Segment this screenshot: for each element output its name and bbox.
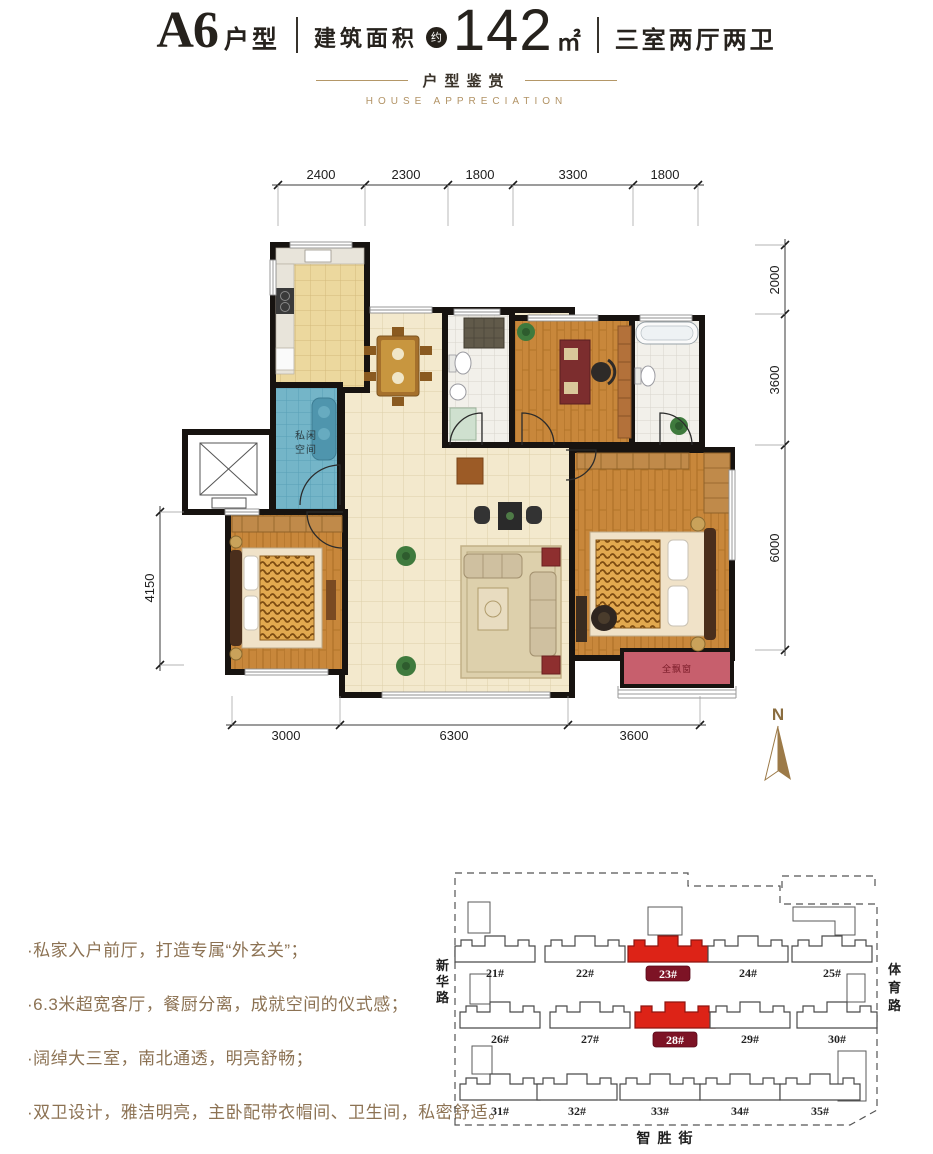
building-row-1: 21# 22# 23# 24# 25# (455, 936, 872, 981)
dim-bottom-3: 3600 (620, 728, 649, 743)
dim-top-4: 3300 (559, 167, 588, 182)
unit-code: A6 (156, 5, 218, 57)
building-26-label: 26# (491, 1032, 509, 1046)
subtitle-cn: 户型鉴赏 (422, 70, 510, 91)
feature-item-1: ·私家入户前厅，打造专属“外玄关”； (27, 936, 465, 961)
building-23-label: 23# (659, 967, 677, 981)
building-26 (460, 1002, 540, 1028)
building-29-label: 29# (741, 1032, 759, 1046)
section-subtitle: 户型鉴赏 HOUSE APPRECIATION (0, 70, 933, 107)
area-unit: ㎡ (557, 6, 581, 57)
feature-list: ·私家入户前厅，打造专属“外玄关”； ·6.3米超宽客厅，餐厨分离，成就空间的仪… (27, 936, 465, 1152)
building-28-label: 28# (666, 1033, 684, 1047)
building-23-highlighted (628, 936, 708, 962)
second-bedroom-window (245, 669, 328, 675)
dim-left-1: 4150 (142, 574, 157, 603)
dim-bottom-2: 6300 (440, 728, 469, 743)
kitchen-top-window (290, 242, 352, 248)
north-arrow-right-half (778, 726, 791, 780)
building-33-label: 33# (651, 1104, 669, 1118)
building-32-label: 32# (568, 1104, 586, 1118)
building-22 (545, 936, 625, 962)
building-33 (620, 1074, 700, 1100)
building-31-label: 31# (491, 1104, 509, 1118)
road-right-label: 体育路 (888, 962, 902, 1013)
guest-bath-window (454, 309, 500, 315)
feature-item-3: ·阔绰大三室，南北通透，明亮舒畅； (27, 1044, 465, 1069)
unit-type-suffix: 户型 (224, 6, 280, 56)
dim-top-5: 1800 (651, 167, 680, 182)
building-35 (780, 1074, 860, 1100)
north-label: N (772, 705, 784, 724)
master-bedroom-window (729, 470, 735, 560)
entry-mat (457, 458, 483, 484)
subtitle-en: HOUSE APPRECIATION (0, 96, 933, 107)
subtitle-rule-right (525, 80, 617, 81)
living-room-window (382, 692, 550, 698)
floor-plan: 私闲空间 (130, 160, 830, 792)
study-window (528, 315, 598, 321)
building-21-label: 21# (486, 966, 504, 980)
area-value: 142 (453, 2, 553, 60)
building-29 (710, 1002, 790, 1028)
bay-window-label: 全飘窗 (662, 663, 692, 674)
dimension-left: 4150 (142, 506, 184, 671)
elevator-door-opening (225, 509, 259, 515)
master-bath-window (640, 315, 692, 321)
approx-badge: 约 (426, 27, 447, 48)
building-34-label: 34# (731, 1104, 749, 1118)
building-31 (460, 1074, 540, 1100)
building-24-label: 24# (739, 966, 757, 980)
dimension-top: 2400 2300 1800 3300 1800 (272, 167, 704, 226)
dim-right-2: 3600 (767, 366, 782, 395)
north-arrow: N (765, 705, 791, 780)
building-34 (700, 1074, 780, 1100)
road-bottom-label: 智胜街 (636, 1130, 700, 1147)
area-label: 建筑面积 (314, 9, 418, 53)
feature-item-2: ·6.3米超宽客厅，餐厨分离，成就空间的仪式感； (27, 990, 465, 1015)
building-21 (455, 936, 535, 962)
building-28-highlighted (635, 1002, 715, 1028)
building-25 (792, 936, 872, 962)
dim-top-1: 2400 (307, 167, 336, 182)
building-24 (708, 936, 788, 962)
kitchen-left-window (270, 260, 276, 295)
building-27-label: 27# (581, 1032, 599, 1046)
building-27 (550, 1002, 630, 1028)
page-header: A6 户型 建筑面积 约 142 ㎡ 三室两厅两卫 (0, 2, 933, 60)
dim-right-1: 2000 (767, 266, 782, 295)
feature-item-4: ·双卫设计，雅洁明亮，主卧配带衣帽间、卫生间，私密舒适。 (27, 1098, 465, 1123)
building-30 (797, 1002, 877, 1028)
dimension-bottom: 3000 6300 3600 (226, 696, 706, 743)
header-divider (296, 17, 298, 53)
building-25-label: 25# (823, 966, 841, 980)
building-35-label: 35# (811, 1104, 829, 1118)
site-map: 21# 22# 23# 24# 25# 26# 27# 28# 29# 30# … (430, 866, 933, 1154)
building-row-2: 26# 27# 28# 29# 30# (460, 1002, 877, 1047)
building-row-3: 31# 32# 33# 34# 35# (460, 1074, 860, 1118)
subtitle-rule-left (316, 80, 408, 81)
layout-description: 三室两厅两卫 (615, 8, 777, 55)
north-arrow-left-half (765, 726, 778, 780)
building-22-label: 22# (576, 966, 594, 980)
dimension-right: 2000 3600 6000 (755, 239, 789, 656)
dim-top-3: 1800 (466, 167, 495, 182)
header-divider (597, 17, 599, 53)
dim-top-2: 2300 (392, 167, 421, 182)
building-32 (537, 1074, 617, 1100)
site-boundary-notch (782, 876, 875, 890)
dim-right-3: 6000 (767, 534, 782, 563)
road-left-label: 新华路 (436, 958, 450, 1005)
building-30-label: 30# (828, 1032, 846, 1046)
dining-top-window (370, 307, 432, 313)
dim-bottom-1: 3000 (272, 728, 301, 743)
